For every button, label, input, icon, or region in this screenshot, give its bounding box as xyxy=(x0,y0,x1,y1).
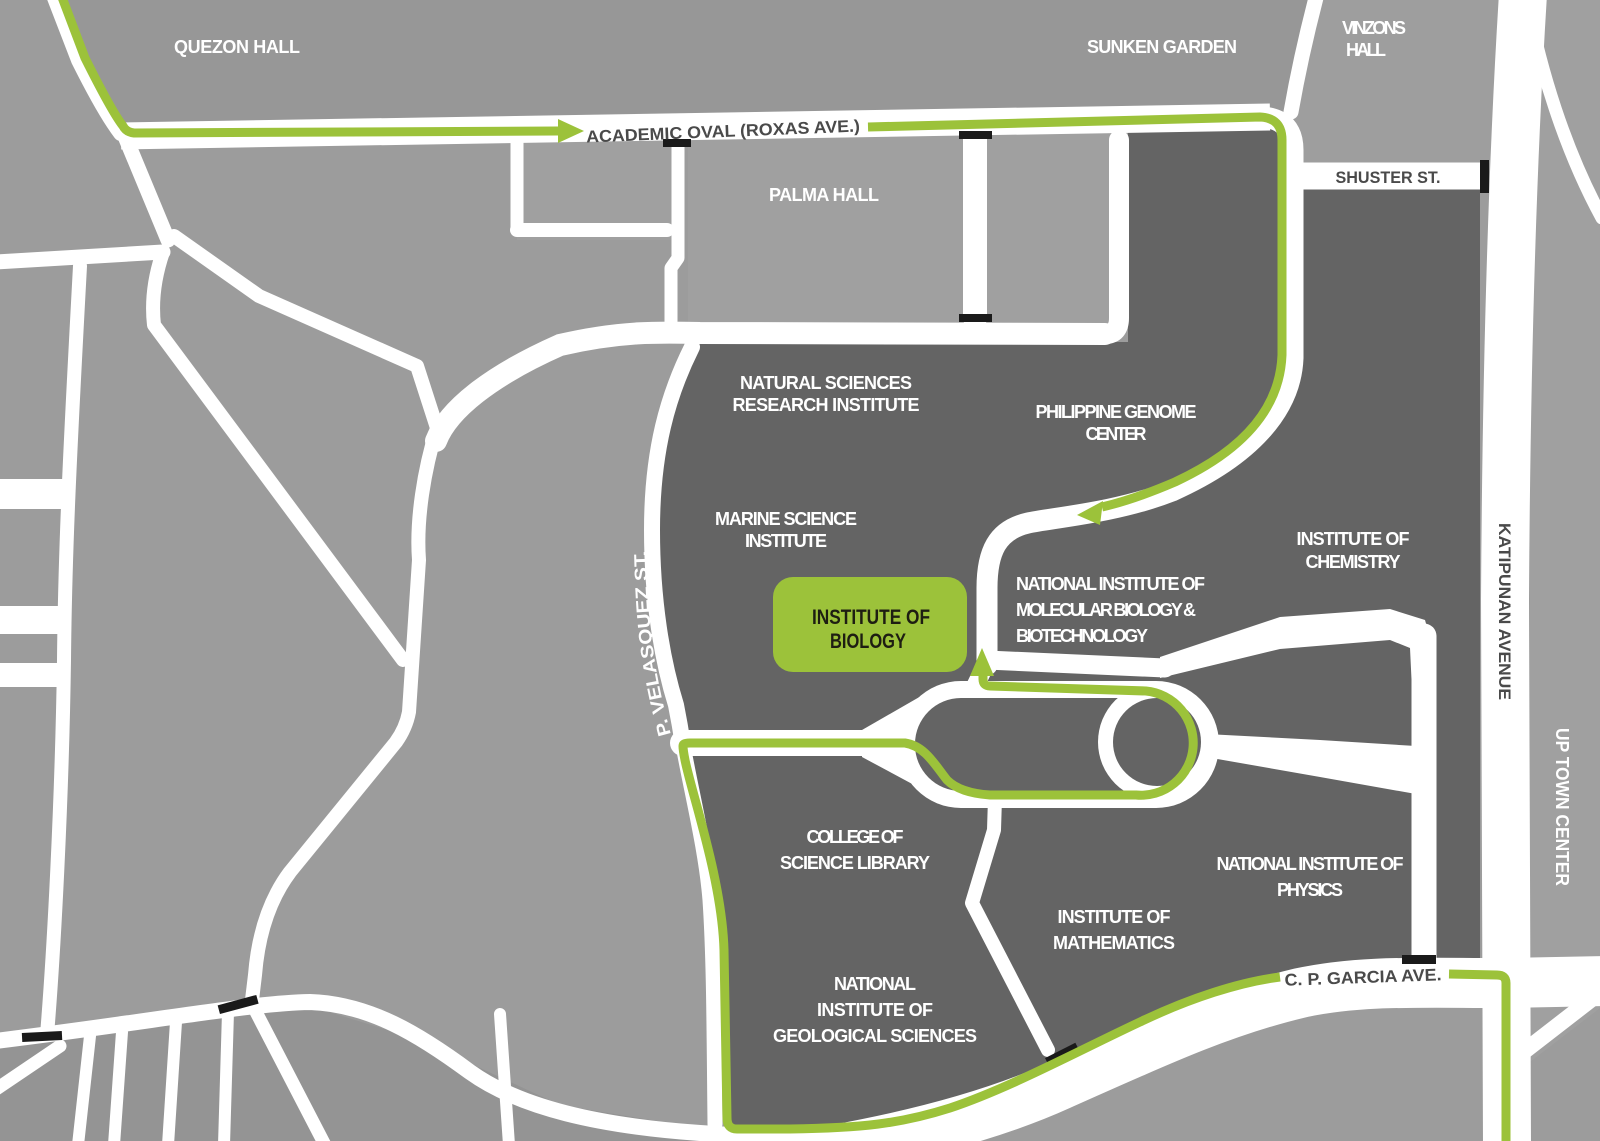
svg-text:BIOLOGY: BIOLOGY xyxy=(830,630,906,653)
svg-text:PHILIPPINE GENOME: PHILIPPINE GENOME xyxy=(1036,402,1197,422)
svg-text:INSTITUTE OF: INSTITUTE OF xyxy=(817,1000,933,1020)
svg-text:NATIONAL: NATIONAL xyxy=(834,974,916,994)
svg-text:GEOLOGICAL SCIENCES: GEOLOGICAL SCIENCES xyxy=(773,1026,977,1046)
svg-text:NATURAL SCIENCES: NATURAL SCIENCES xyxy=(740,373,912,393)
svg-text:RESEARCH INSTITUTE: RESEARCH INSTITUTE xyxy=(733,395,920,415)
svg-text:NATIONAL INSTITUTE OF: NATIONAL INSTITUTE OF xyxy=(1217,854,1404,874)
svg-text:BIOTECHNOLOGY: BIOTECHNOLOGY xyxy=(1016,626,1148,646)
svg-text:INSTITUTE OF: INSTITUTE OF xyxy=(1297,529,1410,549)
svg-text:MARINE SCIENCE: MARINE SCIENCE xyxy=(715,509,857,529)
svg-text:HALL: HALL xyxy=(1346,40,1386,60)
svg-text:CHEMISTRY: CHEMISTRY xyxy=(1306,552,1401,572)
svg-text:SCIENCE LIBRARY: SCIENCE LIBRARY xyxy=(780,853,930,873)
svg-text:SUNKEN GARDEN: SUNKEN GARDEN xyxy=(1087,37,1237,57)
svg-text:INSTITUTE: INSTITUTE xyxy=(745,531,827,551)
svg-text:UP TOWN CENTER: UP TOWN CENTER xyxy=(1552,728,1572,886)
svg-text:INSTITUTE OF: INSTITUTE OF xyxy=(1058,907,1171,927)
svg-text:PALMA HALL: PALMA HALL xyxy=(769,185,879,205)
svg-text:MATHEMATICS: MATHEMATICS xyxy=(1053,933,1175,953)
svg-text:QUEZON HALL: QUEZON HALL xyxy=(174,37,300,57)
svg-text:COLLEGE OF: COLLEGE OF xyxy=(807,827,904,847)
svg-text:PHYSICS: PHYSICS xyxy=(1277,880,1343,900)
svg-text:NATIONAL INSTITUTE OF: NATIONAL INSTITUTE OF xyxy=(1016,574,1205,594)
svg-text:CENTER: CENTER xyxy=(1086,424,1147,444)
svg-text:SHUSTER ST.: SHUSTER ST. xyxy=(1336,168,1441,187)
svg-text:VINZONS: VINZONS xyxy=(1342,18,1406,38)
svg-text:KATIPUNAN AVENUE: KATIPUNAN AVENUE xyxy=(1495,523,1514,700)
svg-text:INSTITUTE OF: INSTITUTE OF xyxy=(812,606,930,629)
svg-text:MOLECULAR BIOLOGY &: MOLECULAR BIOLOGY & xyxy=(1016,600,1196,620)
